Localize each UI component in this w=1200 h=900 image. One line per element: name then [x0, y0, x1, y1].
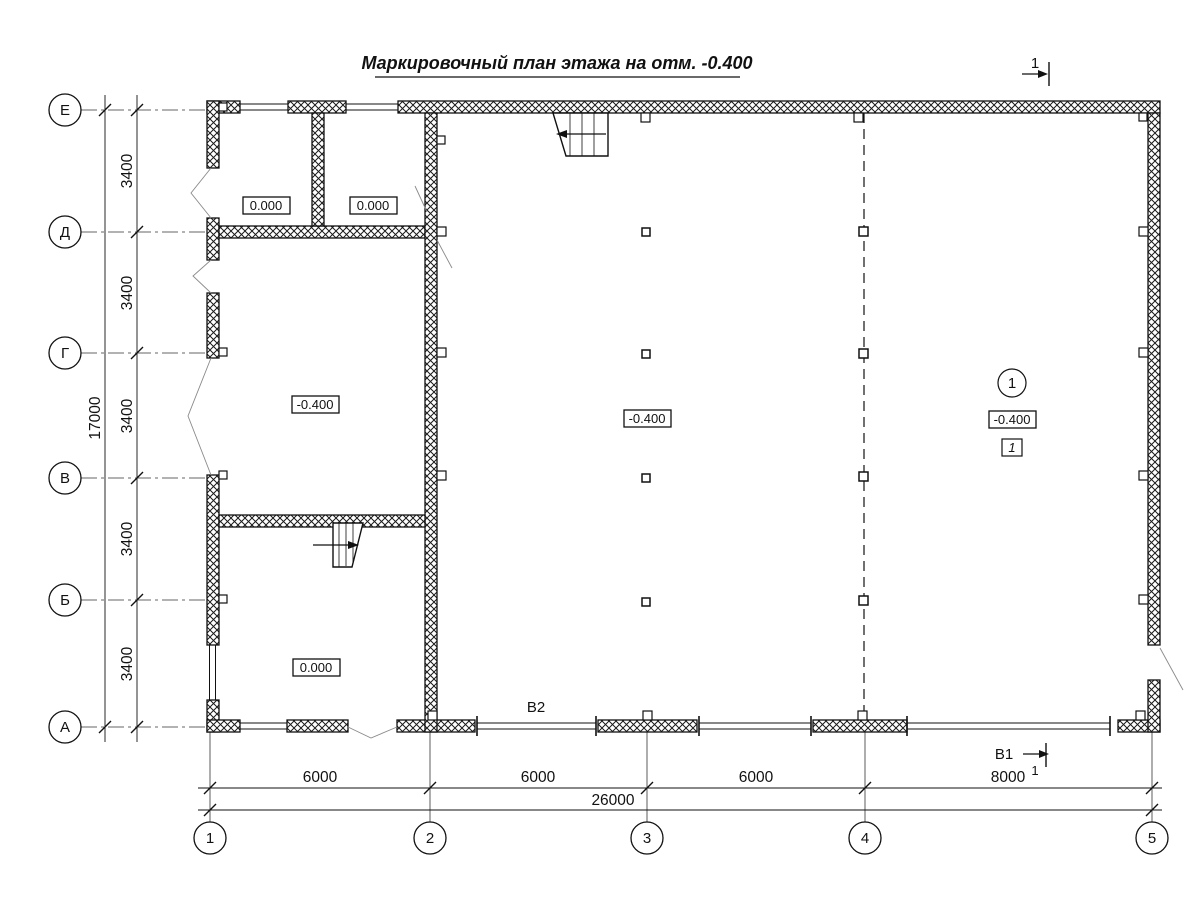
bottom-wall-pier-4: [598, 720, 697, 732]
bottom-wall-corner-v: [1148, 680, 1160, 732]
gate-leaf-lines: [188, 168, 1183, 738]
elevation-hall-center: -0.400: [629, 411, 666, 426]
right-wall-run: [1148, 113, 1160, 645]
dim-col-segment-1: 6000: [303, 769, 338, 786]
col-axis-label-3: 3: [643, 830, 651, 847]
axis-2-longitudinal-wall: [425, 113, 437, 732]
row-axis-label-a: А: [60, 719, 70, 736]
dim-row-segment-3: 3400: [119, 398, 136, 433]
top-rooms-divider-wall: [312, 113, 324, 226]
col-axis-label-4: 4: [861, 830, 869, 847]
elevation-bottom-left-room: 0.000: [300, 660, 333, 675]
left-wall-pier-3: [207, 293, 219, 358]
dim-col-segment-3: 6000: [739, 769, 774, 786]
elevation-hall-right: -0.400: [994, 412, 1031, 427]
axis-bubbles: Е Д Г В Б А 1 2 3 4 5: [49, 94, 1168, 854]
row-d-wall: [219, 226, 425, 238]
dim-row-segment-5: 3400: [119, 646, 136, 681]
utility-label-b2: В2: [527, 699, 545, 716]
dim-row-total: 17000: [87, 396, 104, 439]
b2-label: В2: [527, 699, 545, 716]
elevation-labels: 0.000 0.000 -0.400 -0.400 -0.400 0.000: [243, 197, 1036, 676]
stair-mid: [313, 523, 363, 567]
left-wall-pier-4: [207, 475, 219, 645]
section-bottom-arrow-icon: [1039, 750, 1049, 758]
col-axis-label-5: 5: [1148, 830, 1156, 847]
bottom-wall-pier-1: [207, 720, 240, 732]
top-wall-pier-2: [288, 101, 346, 113]
section-mark-top: 1: [1022, 55, 1049, 86]
section-bottom-number: 1: [1031, 763, 1038, 778]
section-bottom-label: В1: [995, 746, 1013, 763]
row-axis-label-g: Г: [61, 345, 69, 362]
dim-row-segment-2: 3400: [119, 275, 136, 310]
elevation-mid-left-room: -0.400: [297, 397, 334, 412]
position-circle-number: 1: [1008, 375, 1016, 392]
row-axis-label-b: Б: [60, 592, 70, 609]
drawing-title: Маркировочный план этажа на отм. -0.400: [361, 53, 752, 77]
dim-col-segment-4: 8000: [991, 769, 1026, 786]
stair-top: [553, 113, 608, 156]
section-top-number: 1: [1031, 55, 1039, 72]
dim-col-segment-2: 6000: [521, 769, 556, 786]
left-wall-pier-2: [207, 218, 219, 260]
columns: [642, 227, 868, 606]
drawing-sheet: Маркировочный план этажа на отм. -0.400 …: [0, 0, 1200, 900]
dim-row-segment-1: 3400: [119, 153, 136, 188]
grid-axis-lines: [81, 110, 1152, 822]
row-axis-label-e: Е: [60, 102, 70, 119]
row-axis-label-d: Д: [60, 224, 70, 241]
bottom-wall-pier-5: [813, 720, 907, 732]
col-axis-label-1: 1: [206, 830, 214, 847]
row-v-wall: [219, 515, 425, 527]
col-axis-label-2: 2: [426, 830, 434, 847]
dim-col-total: 26000: [591, 792, 634, 809]
floor-plan-svg: Маркировочный план этажа на отм. -0.400 …: [0, 0, 1200, 900]
dim-row-segment-4: 3400: [119, 521, 136, 556]
left-wall-pier-1: [207, 101, 219, 168]
section-top-arrow-icon: [1038, 70, 1048, 78]
top-wall-run: [398, 101, 1160, 113]
elevation-top-left-room: 0.000: [250, 198, 283, 213]
row-axis-label-v: В: [60, 470, 70, 487]
position-item-number: 1: [1008, 440, 1015, 455]
elevation-top-right-room: 0.000: [357, 198, 390, 213]
page-title: Маркировочный план этажа на отм. -0.400: [361, 53, 752, 73]
bottom-wall-pier-2: [287, 720, 348, 732]
